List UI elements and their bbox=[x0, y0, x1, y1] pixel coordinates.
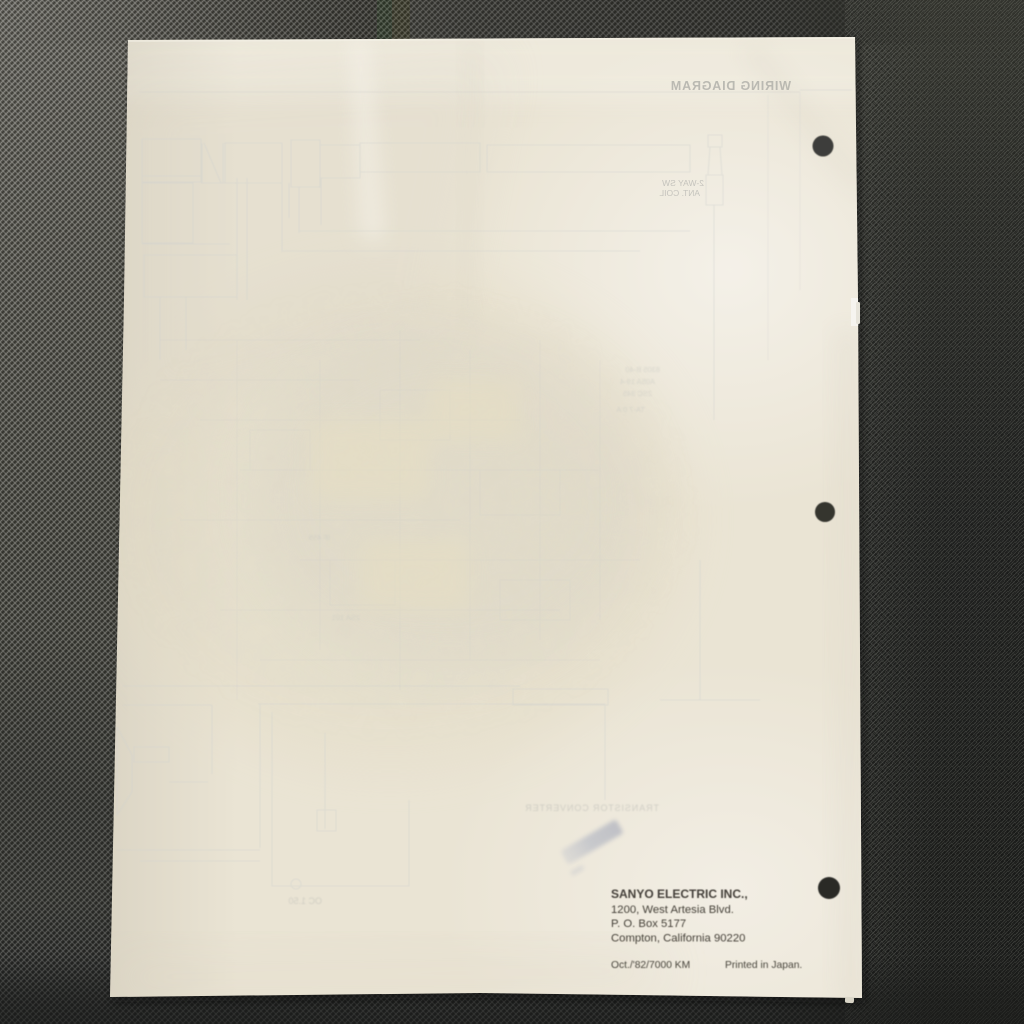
svg-text:Oct./'82/7000 KM: Oct./'82/7000 KM bbox=[611, 960, 690, 971]
svg-text:SANYO ELECTRIC INC.,: SANYO ELECTRIC INC., bbox=[611, 887, 748, 901]
svg-text:2-WAY SW: 2-WAY SW bbox=[662, 178, 704, 188]
svg-text:ANT. COIL: ANT. COIL bbox=[659, 188, 700, 198]
svg-text:WIRING DIAGRAM: WIRING DIAGRAM bbox=[670, 79, 791, 93]
svg-text:Compton, California 90220: Compton, California 90220 bbox=[611, 933, 745, 945]
svg-text:1200, West Artesia Blvd.: 1200, West Artesia Blvd. bbox=[611, 904, 734, 916]
svg-text:Printed in Japan.: Printed in Japan. bbox=[725, 960, 802, 971]
svg-text:TRANSISTOR CONVERTER: TRANSISTOR CONVERTER bbox=[524, 803, 659, 813]
svg-text:P. O. Box 5177: P. O. Box 5177 bbox=[611, 918, 686, 930]
svg-text:OC 1.50: OC 1.50 bbox=[288, 896, 322, 906]
